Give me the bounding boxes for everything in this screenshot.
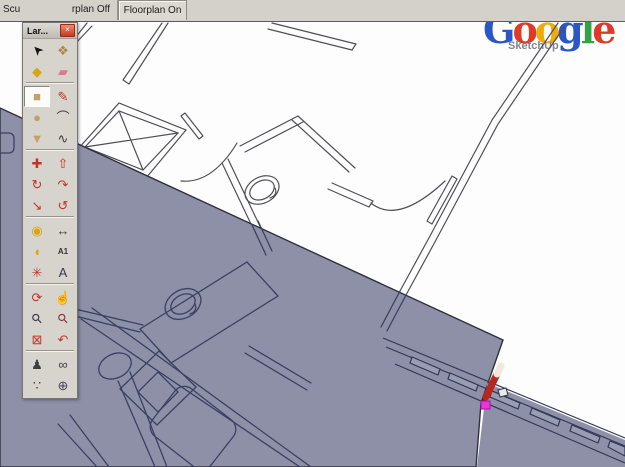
follow-me-tool-button[interactable]: ↷: [50, 174, 76, 195]
door-swing-1: [181, 113, 237, 181]
orbit-icon: ⟳: [32, 291, 43, 304]
zoom-extents-icon: ⊠: [32, 333, 43, 346]
sketchup-window: Scu rplan Off Floorplan On Google Sketch…: [0, 0, 625, 467]
offset-icon: ↺: [58, 199, 69, 212]
move-tool-button[interactable]: ✚: [24, 153, 50, 174]
make-component-icon: ❖: [57, 44, 69, 57]
zoom-window-icon: ⚲: [55, 311, 71, 327]
eraser-icon: ▰: [58, 65, 68, 78]
freehand-tool-button[interactable]: ∿: [50, 128, 76, 149]
door-swing-2: [328, 176, 457, 224]
line-tool-button[interactable]: ✎: [50, 86, 76, 107]
palette-title-bar[interactable]: Lar... ×: [23, 23, 77, 39]
close-icon[interactable]: ×: [60, 24, 75, 37]
freehand-icon: ∿: [58, 132, 69, 145]
protractor-tool-button[interactable]: ◖: [24, 241, 50, 262]
zoom-icon: ⚲: [29, 311, 45, 327]
walk-icon: ∵: [33, 379, 41, 392]
rotate-tool-button[interactable]: ↻: [24, 174, 50, 195]
section-plane-tool-button[interactable]: ⊕: [50, 375, 76, 396]
axes-icon: ✳: [32, 266, 43, 279]
rectangle-icon: ■: [33, 90, 41, 103]
zoom-tool-button[interactable]: ⚲: [24, 308, 50, 329]
select-tool-button[interactable]: ➤: [24, 40, 50, 61]
dimension-icon: ↔: [57, 224, 70, 237]
circle-icon: ●: [33, 111, 41, 124]
inference-marker: [481, 401, 490, 409]
drawing-canvas[interactable]: [0, 0, 625, 467]
line-icon: ✎: [58, 90, 69, 103]
follow-me-icon: ↷: [58, 178, 69, 191]
palette-title: Lar...: [27, 26, 48, 36]
look-around-tool-button[interactable]: ∞: [50, 354, 76, 375]
position-camera-icon: ♟: [31, 358, 43, 371]
scale-icon: ↘: [32, 199, 43, 212]
polygon-icon: ▼: [31, 132, 44, 145]
large-tool-set-palette: Lar... × ➤❖◆▰■✎●⌒▼∿✚⇧↻↷↘↺◉↔◖A1✳A⟳☝⚲⚲⊠↶♟∞…: [22, 22, 78, 399]
zoom-window-tool-button[interactable]: ⚲: [50, 308, 76, 329]
look-around-icon: ∞: [58, 358, 67, 371]
position-camera-tool-button[interactable]: ♟: [24, 354, 50, 375]
rectangle-tool-button[interactable]: ■: [24, 86, 50, 107]
orbit-tool-button[interactable]: ⟳: [24, 287, 50, 308]
tape-measure-icon: ◉: [31, 224, 42, 237]
walk-tool-button[interactable]: ∵: [24, 375, 50, 396]
arc-icon: ⌒: [56, 111, 69, 124]
axes-tool-button[interactable]: ✳: [24, 262, 50, 283]
text-icon: A1: [58, 248, 68, 256]
paint-bucket-tool-button[interactable]: ◆: [24, 61, 50, 82]
zoom-extents-tool-button[interactable]: ⊠: [24, 329, 50, 350]
3d-text-icon: A: [59, 266, 68, 279]
circle-tool-button[interactable]: ●: [24, 107, 50, 128]
3d-text-tool-button[interactable]: A: [50, 262, 76, 283]
offset-tool-button[interactable]: ↺: [50, 195, 76, 216]
endpoint-marker: [498, 388, 508, 397]
pan-icon: ☝: [55, 291, 71, 304]
move-icon: ✚: [32, 157, 43, 170]
zoom-previous-icon: ↶: [58, 333, 69, 346]
scale-tool-button[interactable]: ↘: [24, 195, 50, 216]
paint-bucket-icon: ◆: [32, 65, 42, 78]
section-plane-icon: ⊕: [58, 379, 69, 392]
text-tool-button[interactable]: A1: [50, 241, 76, 262]
protractor-icon: ◖: [33, 245, 41, 258]
interior-wall: [400, 23, 564, 295]
pan-tool-button[interactable]: ☝: [50, 287, 76, 308]
rotate-icon: ↻: [32, 178, 43, 191]
toilet-symbol-1: [240, 170, 284, 210]
dimension-tool-button[interactable]: ↔: [50, 220, 76, 241]
make-component-tool-button[interactable]: ❖: [50, 40, 76, 61]
tape-measure-tool-button[interactable]: ◉: [24, 220, 50, 241]
select-icon: ➤: [29, 42, 46, 59]
eraser-tool-button[interactable]: ▰: [50, 61, 76, 82]
arc-tool-button[interactable]: ⌒: [50, 107, 76, 128]
push-pull-tool-button[interactable]: ⇧: [50, 153, 76, 174]
polygon-tool-button[interactable]: ▼: [24, 128, 50, 149]
zoom-previous-tool-button[interactable]: ↶: [50, 329, 76, 350]
palette-tool-grid: ➤❖◆▰■✎●⌒▼∿✚⇧↻↷↘↺◉↔◖A1✳A⟳☝⚲⚲⊠↶♟∞∵⊕: [23, 39, 77, 398]
push-pull-icon: ⇧: [58, 157, 69, 170]
